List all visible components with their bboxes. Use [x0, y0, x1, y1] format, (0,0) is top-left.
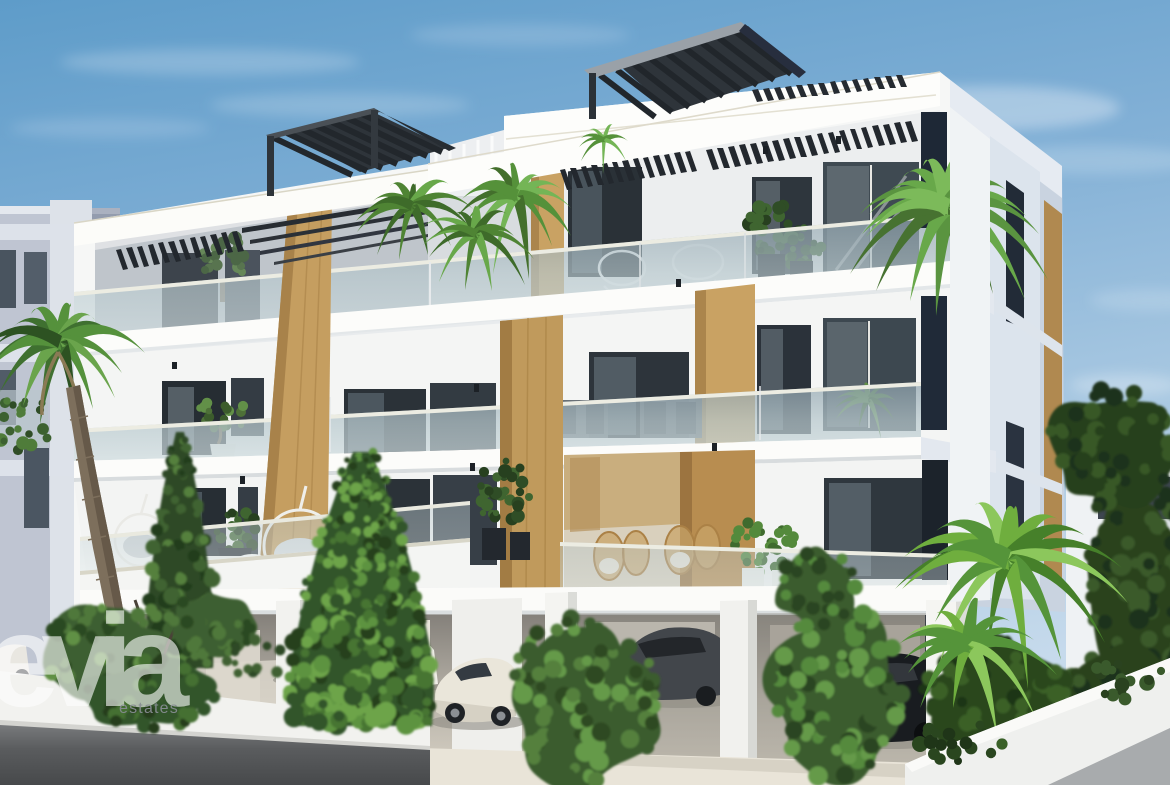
svg-text:estates: estates — [119, 700, 179, 717]
